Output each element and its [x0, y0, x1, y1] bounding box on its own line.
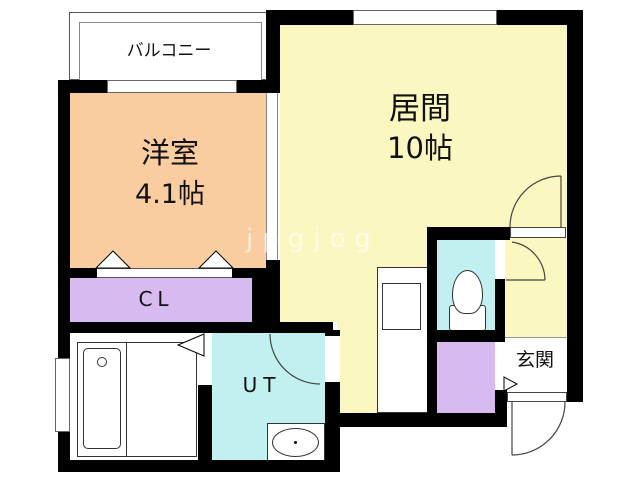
living-room-size: 10帖 — [360, 133, 480, 165]
western-room-size: 4.1帖 — [110, 180, 230, 210]
utility-label: UT — [222, 374, 302, 396]
living-room-label: 居間 — [360, 92, 480, 126]
entrance-step-marker-icon — [504, 377, 517, 391]
western-room-label: 洋室 — [110, 138, 230, 170]
door-swing-overlay — [0, 0, 640, 480]
closet-door-marker-icon — [199, 251, 233, 268]
toilet-door-arc — [512, 242, 545, 280]
living-door-arc — [510, 176, 561, 227]
closet-label: CL — [106, 288, 206, 310]
entrance-label: 玄関 — [505, 350, 565, 371]
floorplan: バルコニー 洋室 4.1帖 居間 10帖 CL UT 玄関 jpgjog — [0, 0, 640, 480]
bathroom-folding-door-icon — [178, 334, 204, 356]
closet-door-marker-icon — [96, 251, 130, 268]
balcony-label: バルコニー — [94, 42, 244, 61]
entrance-door-arc — [512, 402, 565, 455]
